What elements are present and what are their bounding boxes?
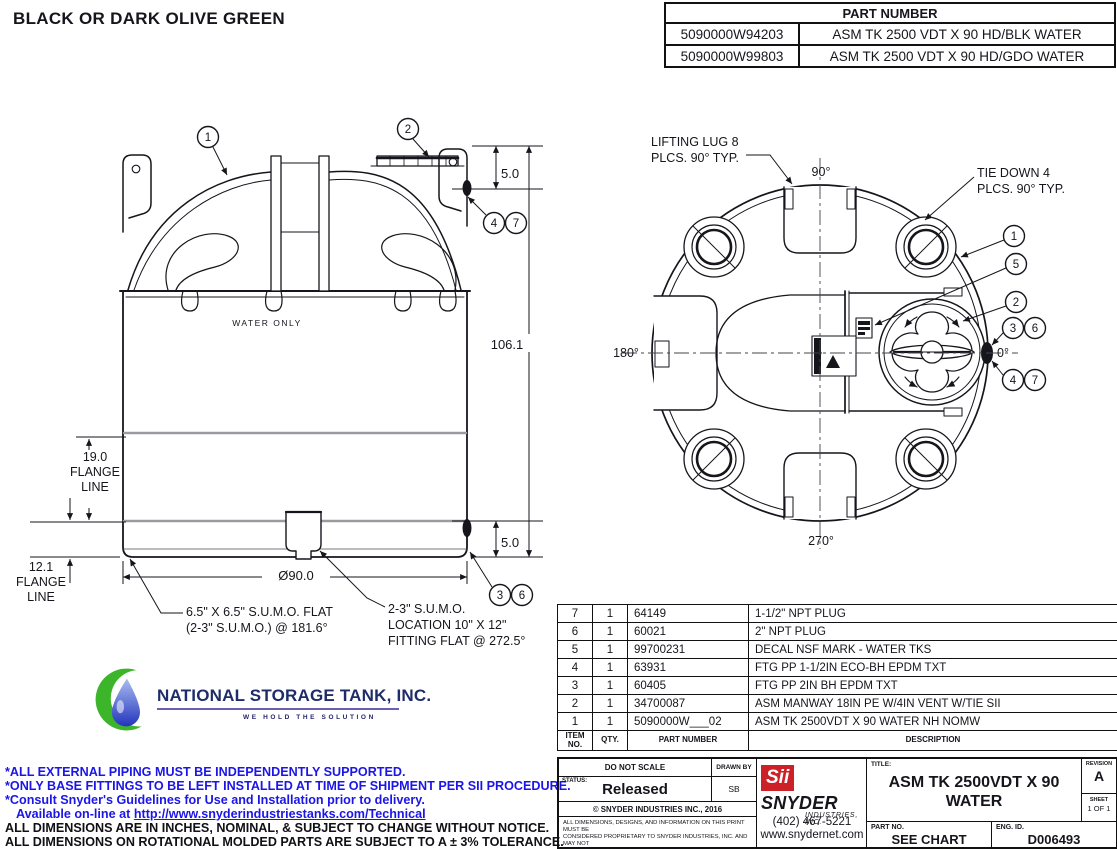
svg-text:6: 6 [1032,323,1038,335]
table-row: 61600212" NPT PLUG [558,623,1117,641]
title-block: DO NOT SCALE DRAWN BY STATUS: Released S… [557,757,1117,849]
national-storage-tank-logo: NATIONAL STORAGE TANK, INC. WE HOLD THE … [95,664,400,744]
table-row: 115090000W___02ASM TK 2500VDT X 90 WATER… [558,713,1117,731]
angle-270: 270° [808,534,834,548]
item-no: 7 [558,605,593,623]
dim-height: 106.1 [491,337,524,352]
copyright: © SNYDER INDUSTRIES INC., 2016 [559,802,757,817]
note-sumo-location: 2-3" S.U.M.O. [388,602,465,616]
svg-text:PLCS. 90° TYP.: PLCS. 90° TYP. [651,151,739,165]
do-not-scale: DO NOT SCALE [559,759,712,777]
technical-link[interactable]: http://www.snyderindustriestanks.com/Tec… [134,807,426,821]
drawn-by-label: DRAWN BY [712,759,757,777]
note-tolerance: ALL DIMENSIONS ON ROTATIONAL MOLDED PART… [5,836,571,849]
contact-info: (402) 467-5221 www.snydernet.com [757,816,867,842]
sheet-cell: SHEET 1 OF 1 [1082,794,1116,822]
table-row: 4163931FTG PP 1-1/2IN ECO-BH EPDM TXT [558,659,1117,677]
svg-text:3: 3 [497,590,503,602]
angle-90: 90° [812,165,831,179]
table-row: 5090000W99803 ASM TK 2500 VDT X 90 HD/GD… [665,45,1115,67]
proprietary-disclaimer: ALL DIMENSIONS, DESIGNS, AND INFORMATION… [559,817,757,848]
dim-bottom-fitting: 5.0 [501,535,519,550]
drawing-notes: *ALL EXTERNAL PIPING MUST BE INDEPENDENT… [5,766,571,849]
svg-text:4: 4 [1010,375,1017,387]
sheet-value: 1 OF 1 [1082,803,1116,814]
website: www.snydernet.com [757,829,867,842]
side-view-tank [120,149,472,559]
nst-tagline: WE HOLD THE SOLUTION [243,714,376,721]
svg-text:2: 2 [1013,297,1019,309]
svg-text:19.0: 19.0 [83,450,107,464]
nst-company-name: NATIONAL STORAGE TANK, INC. [157,686,399,710]
part-no-value: SEE CHART [867,832,991,847]
status-cell: STATUS: Released [559,777,712,802]
col-item: ITEMNO. [558,731,593,751]
revision-cell: REVISION A [1082,759,1116,794]
part-number: 64149 [628,605,749,623]
eng-id-cell: ENG. ID. D006493 [992,822,1116,848]
nsf-decal [856,318,872,338]
description: 1-1/2" NPT PLUG [749,605,1117,623]
svg-text:FITTING FLAT @ 272.5°: FITTING FLAT @ 272.5° [388,634,525,648]
svg-text:1: 1 [205,132,211,144]
title-cell: TITLE: ASM TK 2500VDT X 90 WATER [867,759,1082,822]
bom-header-row: ITEMNO. QTY. PART NUMBER DESCRIPTION [558,731,1117,751]
svg-text:7: 7 [513,218,519,230]
svg-text:LOCATION 10" X 12": LOCATION 10" X 12" [388,618,506,632]
title-label: TITLE: [871,761,891,768]
tie-down-label: TIE DOWN 4 [977,166,1050,180]
svg-text:PLCS. 90° TYP.: PLCS. 90° TYP. [977,182,1065,196]
status-label: STATUS: [562,778,587,784]
dim-diameter: Ø90.0 [278,568,313,583]
svg-text:3: 3 [1010,323,1016,335]
col-qty: QTY. [593,731,628,751]
table-row: 3160405FTG PP 2IN BH EPDM TXT [558,677,1117,695]
qty: 1 [593,605,628,623]
drawing-title-line2: WATER [867,792,1081,811]
drawing-title-line1: ASM TK 2500VDT X 90 [867,773,1081,792]
svg-text:FLANGE: FLANGE [16,575,66,589]
lifting-lug-label: LIFTING LUG 8 [651,135,739,149]
link-prefix: Available on-line at [16,807,134,821]
svg-text:5: 5 [1013,259,1019,271]
svg-text:1: 1 [1011,231,1017,243]
revision-value: A [1082,767,1116,785]
note-link-line: Available on-line at http://www.snyderin… [5,808,571,822]
svg-text:6: 6 [519,590,525,602]
svg-text:4: 4 [491,218,498,230]
note-piping: *ALL EXTERNAL PIPING MUST BE INDEPENDENT… [5,766,571,780]
angle-180: 180° [613,346,639,360]
eng-id-value: D006493 [992,832,1116,847]
svg-text:FLANGE: FLANGE [70,465,120,479]
part-description: ASM TK 2500 VDT X 90 HD/BLK WATER [799,23,1115,45]
table-row: 2134700087ASM MANWAY 18IN PE W/4IN VENT … [558,695,1117,713]
part-description: ASM TK 2500 VDT X 90 HD/GDO WATER [799,45,1115,67]
sump-detail [286,512,321,559]
svg-text:7: 7 [1032,375,1038,387]
part-number: 5090000W99803 [665,45,799,67]
svg-text:LINE: LINE [27,590,55,604]
top-view-balloons [1003,226,1046,391]
sii-logo-mark: Sii [761,765,794,791]
table-row: 5090000W94203 ASM TK 2500 VDT X 90 HD/BL… [665,23,1115,45]
note-base-fittings: *ONLY BASE FITTINGS TO BE LEFT INSTALLED… [5,780,571,794]
table-row: 71641491-1/2" NPT PLUG [558,605,1117,623]
water-only-label: WATER ONLY [232,318,302,328]
side-fitting-top [463,180,472,196]
note-guidelines: *Consult Snyder's Guidelines for Use and… [5,794,571,808]
drawing-sheet: BLACK OR DARK OLIVE GREEN [0,0,1117,849]
part-no-cell: PART NO. SEE CHART [867,822,992,848]
water-drop-icon [95,666,155,738]
snyder-logo-cell: SiiSNYDER INDUSTRIES, INC. (402) 467-522… [757,759,867,848]
svg-text:2: 2 [405,124,411,136]
part-number-table: PART NUMBER 5090000W94203 ASM TK 2500 VD… [664,2,1116,68]
svg-text:LINE: LINE [81,480,109,494]
part-number: 5090000W94203 [665,23,799,45]
angle-0: 0° [997,346,1009,360]
warning-label [812,336,856,376]
table-row: 5199700231DECAL NSF MARK - WATER TKS [558,641,1117,659]
side-fitting-bottom [463,519,472,537]
note-dimensions: ALL DIMENSIONS ARE IN INCHES, NOMINAL, &… [5,822,571,836]
drawn-by-value: SB [712,777,757,802]
svg-text:(2-3" S.U.M.O.) @ 181.6°: (2-3" S.U.M.O.) @ 181.6° [186,621,328,635]
note-sumo-flat: 6.5" X 6.5" S.U.M.O. FLAT [186,605,333,619]
col-description: DESCRIPTION [749,731,1117,751]
phone-number: (402) 467-5221 [757,816,867,829]
lifting-lug-side-left [123,155,151,232]
dim-top-fitting: 5.0 [501,166,519,181]
bom-table: 71641491-1/2" NPT PLUG 61600212" NPT PLU… [557,604,1117,751]
part-table-title: PART NUMBER [665,3,1115,23]
col-part-number: PART NUMBER [628,731,749,751]
svg-text:12.1: 12.1 [29,560,53,574]
side-view-balloons [198,119,533,606]
